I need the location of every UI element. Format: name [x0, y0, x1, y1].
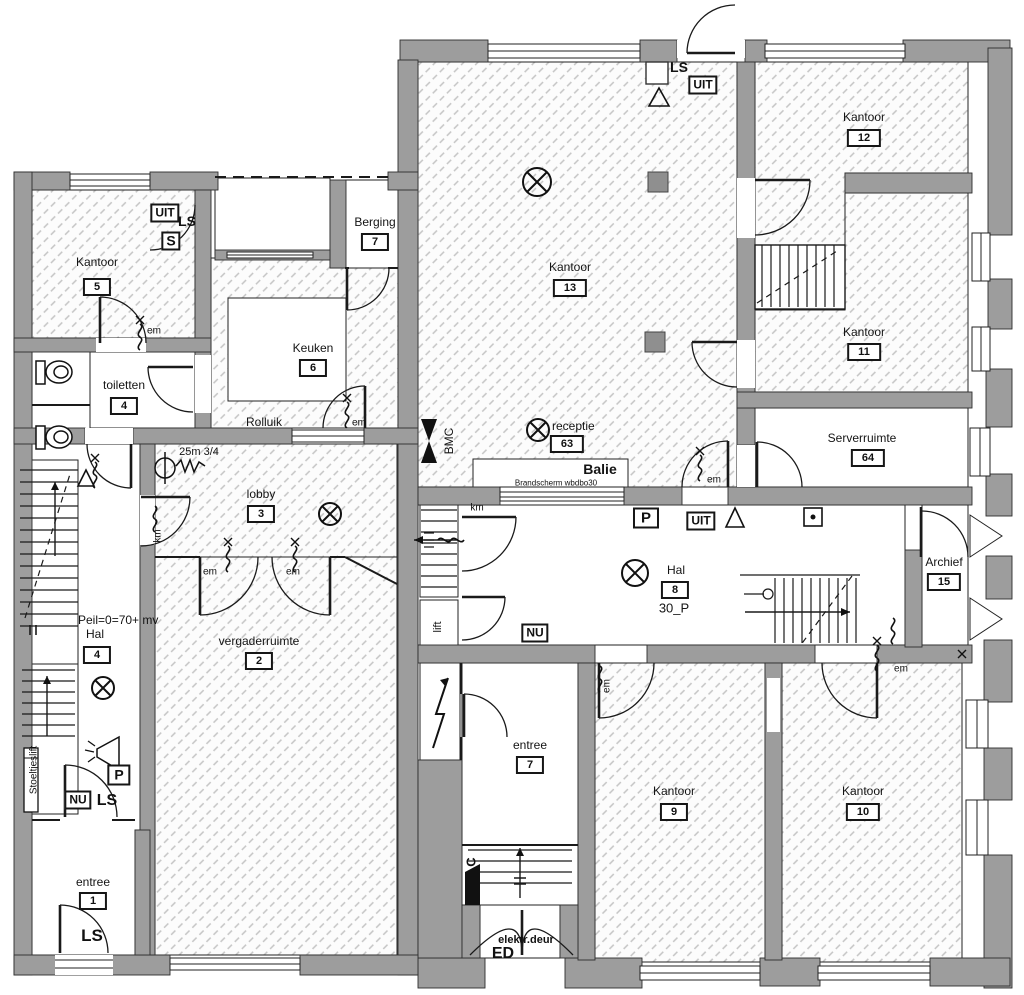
label-ls-hal4: LS [97, 792, 117, 810]
label-kantoor-12: Kantoor [843, 111, 885, 123]
num-kantoor-11: 11 [847, 343, 881, 361]
badge-s: S [161, 232, 180, 251]
label-kantoor-13: Kantoor [549, 261, 591, 273]
stairs-kantoor-12 [762, 245, 834, 307]
label-c: C [464, 857, 479, 866]
label-serverruimte: Serverruimte [828, 432, 897, 444]
window-bay-2 [970, 598, 1002, 640]
label-hal-8: Hal [667, 564, 685, 576]
num-hal-4: 4 [83, 646, 111, 664]
badge-nu-hal8: NU [521, 624, 548, 643]
shaft-km-stairs [420, 505, 458, 597]
badge-uit-hal8: UIT [686, 512, 715, 531]
label-archief: Archief [925, 556, 962, 568]
label-hal-4: Hal [86, 628, 104, 640]
num-hal-8: 8 [661, 581, 689, 599]
label-em-vergader-left: em [203, 567, 217, 578]
label-berging: Berging [354, 216, 395, 228]
label-em-vergader-right: em [286, 567, 300, 578]
label-em-kantoor10: em [894, 664, 908, 675]
num-berging: 7 [361, 233, 389, 251]
label-ls-entree1: LS [81, 926, 103, 946]
balie-counter-slot [500, 487, 624, 501]
label-km-lobby: km [153, 529, 164, 542]
num-kantoor-9: 9 [660, 803, 688, 821]
num-entree-1: 1 [79, 892, 107, 910]
room-lobby [155, 444, 397, 557]
label-lobby: lobby [247, 488, 276, 500]
room-void [215, 178, 330, 255]
num-serverruimte: 64 [851, 449, 885, 467]
window-bay-1 [970, 515, 1002, 557]
label-em-keuken: em [352, 418, 366, 429]
num-archief: 15 [927, 573, 961, 591]
num-kantoor-10: 10 [846, 803, 880, 821]
num-toiletten: 4 [110, 397, 138, 415]
label-vergaderruimte: vergaderruimte [219, 635, 300, 647]
label-ls-top: LS [670, 59, 688, 75]
label-rolluik: Rolluik [246, 416, 282, 428]
column-1 [648, 172, 668, 192]
floor-plan: Kantoor 5 toiletten 4 Keuken 6 Berging 7… [0, 0, 1024, 995]
label-km-hal8: km [470, 503, 483, 514]
label-receptie: receptie [552, 420, 595, 432]
num-receptie: 63 [550, 435, 584, 453]
label-kantoor-11: Kantoor [843, 326, 885, 338]
label-em-kantoor5: em [147, 326, 161, 337]
badge-p-hal4: P [107, 765, 130, 786]
label-ed: ED [492, 945, 514, 963]
label-peil: Peil=0=70+ mv [78, 614, 158, 626]
num-kantoor-5: 5 [83, 278, 111, 296]
label-kantoor-5: Kantoor [76, 256, 118, 268]
num-keuken: 6 [299, 359, 327, 377]
label-stoeltjeslift: Stoeltjeslift [29, 746, 40, 794]
badge-nu-hal4: NU [64, 791, 91, 810]
num-kantoor-12: 12 [847, 129, 881, 147]
label-entree-1: entree [76, 876, 110, 888]
label-lift: lift [432, 622, 444, 633]
label-keuken: Keuken [293, 342, 334, 354]
label-ls-topleft: LS [178, 213, 196, 229]
badge-p-hal8: P [633, 508, 659, 529]
label-hal-8-sub: 30_P [659, 602, 689, 615]
label-hose: 25m 3/4 [179, 446, 219, 458]
room-entree-7 [462, 663, 578, 845]
floor-plan-drawing [0, 0, 1024, 995]
label-em-kantoor9: em [602, 679, 613, 693]
num-entree-7: 7 [516, 756, 544, 774]
badge-uit-topleft: UIT [150, 204, 179, 223]
num-kantoor-13: 13 [553, 279, 587, 297]
label-entree-7: entree [513, 739, 547, 751]
room-vergaderruimte [155, 557, 397, 955]
badge-uit-top: UIT [688, 76, 717, 95]
ceiling-box [646, 62, 668, 84]
room-serverruimte [755, 408, 968, 487]
column-2 [645, 332, 665, 352]
label-kantoor-10: Kantoor [842, 785, 884, 797]
label-bmc: BMC [442, 428, 456, 455]
label-brandscherm: Brandscherm wbdbo30 [515, 479, 597, 488]
dot-square [804, 508, 822, 526]
label-kantoor-9: Kantoor [653, 785, 695, 797]
label-balie: Balie [583, 462, 616, 476]
shaft-electrical [420, 663, 460, 760]
label-em-receptie: em [707, 475, 721, 486]
num-lobby: 3 [247, 505, 275, 523]
num-vergaderruimte: 2 [245, 652, 273, 670]
label-toiletten: toiletten [103, 379, 145, 391]
